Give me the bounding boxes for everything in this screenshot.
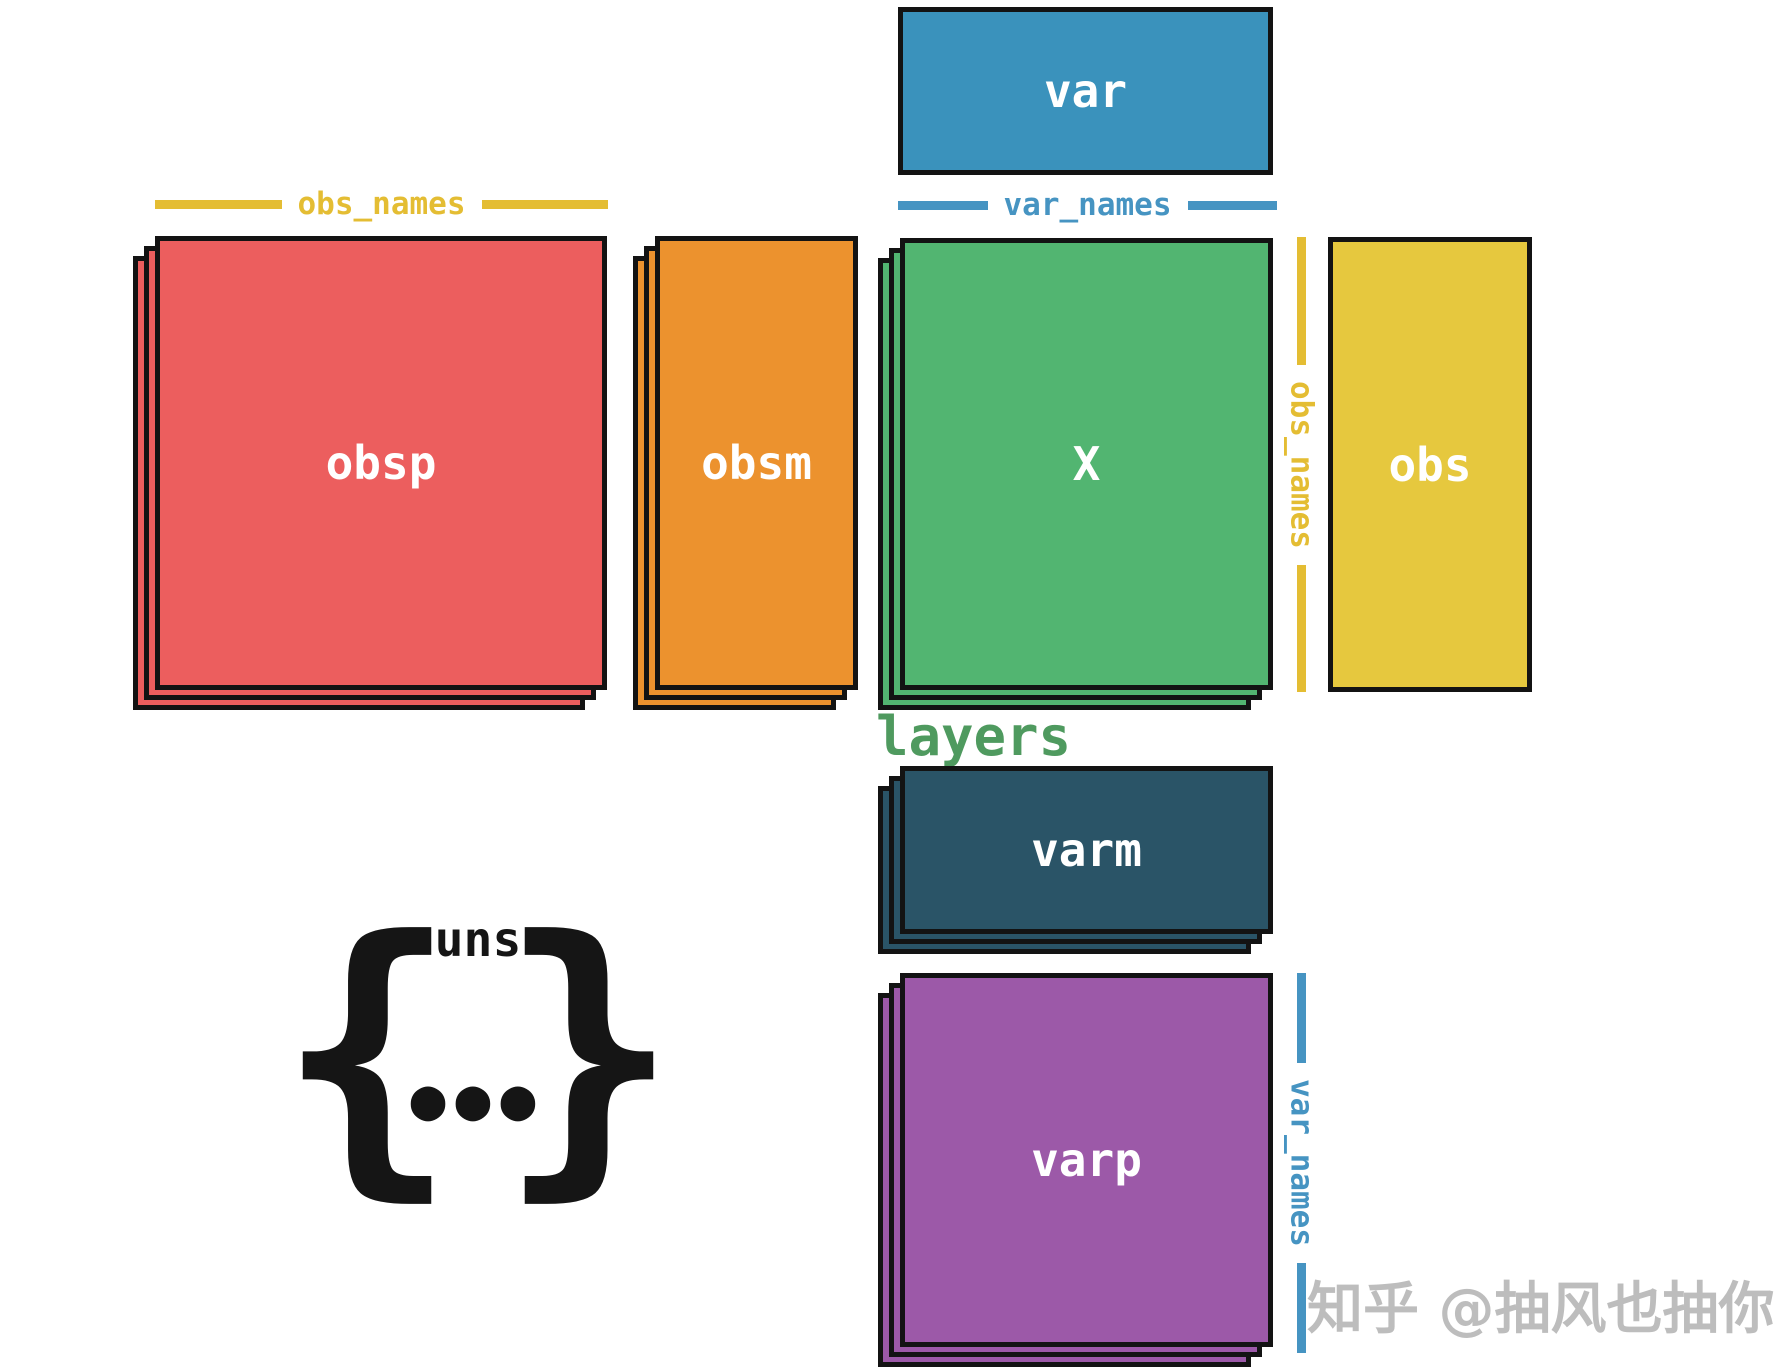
obsp-stack: obsp (155, 236, 607, 690)
x-matrix-stack: X (900, 238, 1273, 690)
obs-names-side-axis: obs_names (1285, 237, 1317, 692)
x-matrix-label: X (1073, 441, 1101, 487)
var-names-side-axis: var_names (1285, 973, 1317, 1353)
obsm-stack: obsm (655, 236, 858, 690)
obs-names-side-line-top (1297, 237, 1306, 365)
var-names-top-line-left (898, 201, 988, 210)
uns-right-brace: } (498, 935, 679, 1169)
uns-label: uns (435, 916, 522, 964)
obsm-label: obsm (701, 440, 812, 486)
uns-left-brace: { (277, 935, 458, 1169)
obs-names-top-line-right (482, 200, 609, 209)
var-names-side-line-top (1297, 973, 1306, 1063)
varp-box: varp (900, 973, 1273, 1347)
var-names-top-text: var_names (1004, 190, 1172, 221)
varm-stack: varm (900, 766, 1273, 934)
varm-label: varm (1031, 827, 1142, 873)
x-matrix-box: X (900, 238, 1273, 690)
anndata-structure-diagram: var obs_names var_names obsp obsm X (0, 0, 1779, 1369)
layers-label: layers (876, 710, 1071, 764)
varp-label: varp (1031, 1137, 1142, 1183)
var-names-top-axis: var_names (898, 189, 1277, 221)
uns-ellipsis-dots: ●●● (411, 1070, 546, 1128)
obs-names-top-line-left (155, 200, 282, 209)
obs-names-top-text: obs_names (298, 189, 466, 220)
obsp-box: obsp (155, 236, 607, 690)
obs-names-side-line-bottom (1297, 565, 1306, 693)
var-names-side-text: var_names (1286, 1079, 1317, 1247)
var-label: var (1044, 68, 1127, 114)
obsp-label: obsp (326, 440, 437, 486)
obs-label: obs (1388, 442, 1471, 488)
obs-names-side-text: obs_names (1286, 381, 1317, 549)
obsm-box: obsm (655, 236, 858, 690)
var-box: var (898, 7, 1273, 175)
varm-box: varm (900, 766, 1273, 934)
var-names-top-line-right (1188, 201, 1278, 210)
uns-group: { } uns ●●● (277, 928, 679, 1176)
watermark: 知乎 @抽风也抽你 (1307, 1264, 1775, 1345)
obs-names-top-axis: obs_names (155, 188, 608, 220)
obs-box: obs (1328, 237, 1532, 692)
var-names-side-line-bottom (1297, 1263, 1306, 1353)
varp-stack: varp (900, 973, 1273, 1347)
